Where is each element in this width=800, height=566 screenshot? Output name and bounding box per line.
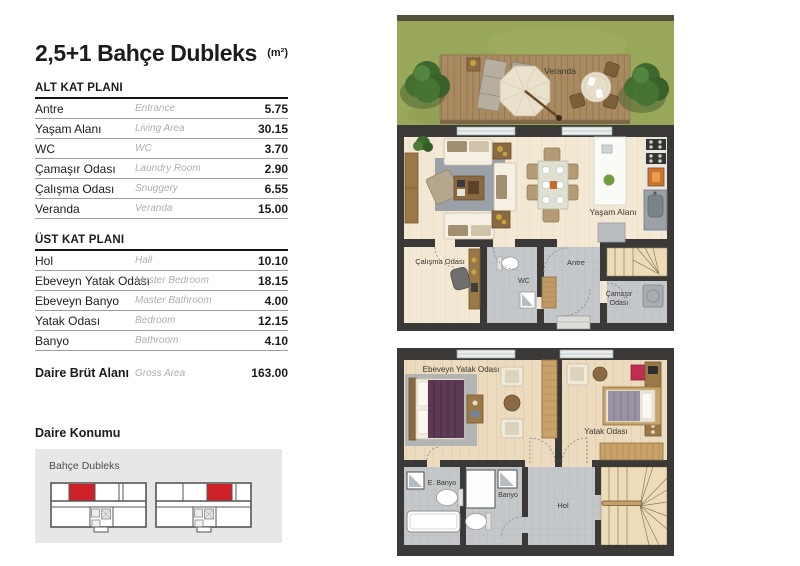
building-diagrams [50,482,282,533]
room-area-value: 2.90 [265,162,288,176]
laundry-label-line2: Odası [610,300,629,307]
room-area-value: 10.10 [258,254,288,268]
bedroom-label: Yatak Odası [584,427,627,436]
staircase [601,467,667,545]
room-name-tr: Banyo [35,334,135,348]
master-bedroom-label: Ebeveyn Yatak Odası [423,365,500,374]
room-name-en: Master Bedroom [135,275,258,286]
staircase [607,248,667,276]
page-title: 2,5+1 Bahçe Dubleks [35,40,257,67]
wc-label: WC [518,278,530,285]
apartment-location-section: Daire Konumu Bahçe Dubleks [35,426,288,543]
room-area-value: 6.55 [265,182,288,196]
room-name-en: Laundry Room [135,163,265,174]
floor-plan-sheet: 2,5+1 Bahçe Dubleks (m²) ALT KAT PLANI A… [0,0,800,566]
table-row: Banyo Bathroom 4.10 [35,331,288,351]
lower-floor-heading: ALT KAT PLANI [35,82,288,99]
room-area-value: 4.00 [265,294,288,308]
bath-label: Banyo [498,492,518,499]
entry-door [557,316,590,329]
room-name-tr: Veranda [35,202,135,216]
location-box: Bahçe Dubleks [35,449,282,543]
living-area-label: Yaşam Alanı [589,207,636,217]
washer-icon [643,285,663,307]
upper-floor-table: Hol Hall 10.10 Ebeveyn Yatak Odası Maste… [35,251,288,351]
title-row: 2,5+1 Bahçe Dubleks (m²) [35,40,288,67]
table-row: Ebeveyn Banyo Master Bathroom 4.00 [35,291,288,311]
table-row: Yaşam Alanı Living Area 30.15 [35,119,288,139]
upper-floor-plan: Ebeveyn Yatak Odası Yatak Odası E. [397,348,674,561]
master-bath-label: E. Banyo [428,480,457,487]
room-name-en: Master Bathroom [135,295,265,306]
room-name-tr: Antre [35,102,135,116]
hall-label: Hol [557,501,569,510]
room-name-en: WC [135,143,265,154]
room-name-tr: Ebeveyn Banyo [35,294,135,308]
room-name-en: Hall [135,255,258,266]
table-row: Veranda Veranda 15.00 [35,199,288,219]
room-name-tr: Hol [35,254,135,268]
room-name-en: Snuggery [135,183,265,194]
unit-label: (m²) [267,47,288,59]
room-name-tr: Çamaşır Odası [35,162,135,176]
table-row: Ebeveyn Yatak Odası Master Bedroom 18.15 [35,271,288,291]
table-row: Antre Entrance 5.75 [35,99,288,119]
lower-floor-table: Antre Entrance 5.75 Yaşam Alanı Living A… [35,99,288,219]
gross-area-label-tr: Daire Brüt Alanı [35,366,135,380]
laundry-label-line1: Çamaşır [606,291,633,298]
room-area-value: 15.00 [258,202,288,216]
table-row: Çalışma Odası Snuggery 6.55 [35,179,288,199]
room-area-value: 18.15 [258,274,288,288]
room-area-value: 30.15 [258,122,288,136]
table-row: WC WC 3.70 [35,139,288,159]
room-name-en: Entrance [135,103,265,114]
location-heading: Daire Konumu [35,426,288,440]
study-label: Çalışma Odası [415,257,465,266]
gross-area-value: 163.00 [251,366,288,380]
entry-bench [542,277,556,308]
veranda-label: Veranda [544,66,576,76]
wardrobe [600,443,663,460]
building-location-diagram-2 [155,482,252,533]
room-area-value: 5.75 [265,102,288,116]
building-location-diagram-1 [50,482,147,533]
gross-area-label-en: Gross Area [135,368,251,379]
gross-area-row: Daire Brüt Alanı Gross Area 163.00 [35,362,288,384]
room-name-tr: WC [35,142,135,156]
upper-floor-heading: ÜST KAT PLANI [35,234,288,251]
lower-floor-plan: Veranda [397,15,674,336]
table-row: Hol Hall 10.10 [35,251,288,271]
room-name-tr: Ebeveyn Yatak Odası [35,274,135,288]
table-row: Çamaşır Odası Laundry Room 2.90 [35,159,288,179]
room-name-en: Veranda [135,203,258,214]
room-area-value: 12.15 [258,314,288,328]
room-name-en: Bedroom [135,315,258,326]
entry-hall-label: Antre [567,258,585,267]
room-area-value: 3.70 [265,142,288,156]
room-name-en: Bathroom [135,335,265,346]
room-area-value: 4.10 [265,334,288,348]
area-tables-column: 2,5+1 Bahçe Dubleks (m²) ALT KAT PLANI A… [35,40,288,384]
room-name-tr: Yaşam Alanı [35,122,135,136]
location-unit-type-label: Bahçe Dubleks [49,460,120,472]
table-row: Yatak Odası Bedroom 12.15 [35,311,288,331]
room-name-tr: Yatak Odası [35,314,135,328]
room-name-tr: Çalışma Odası [35,182,135,196]
room-name-en: Living Area [135,123,258,134]
